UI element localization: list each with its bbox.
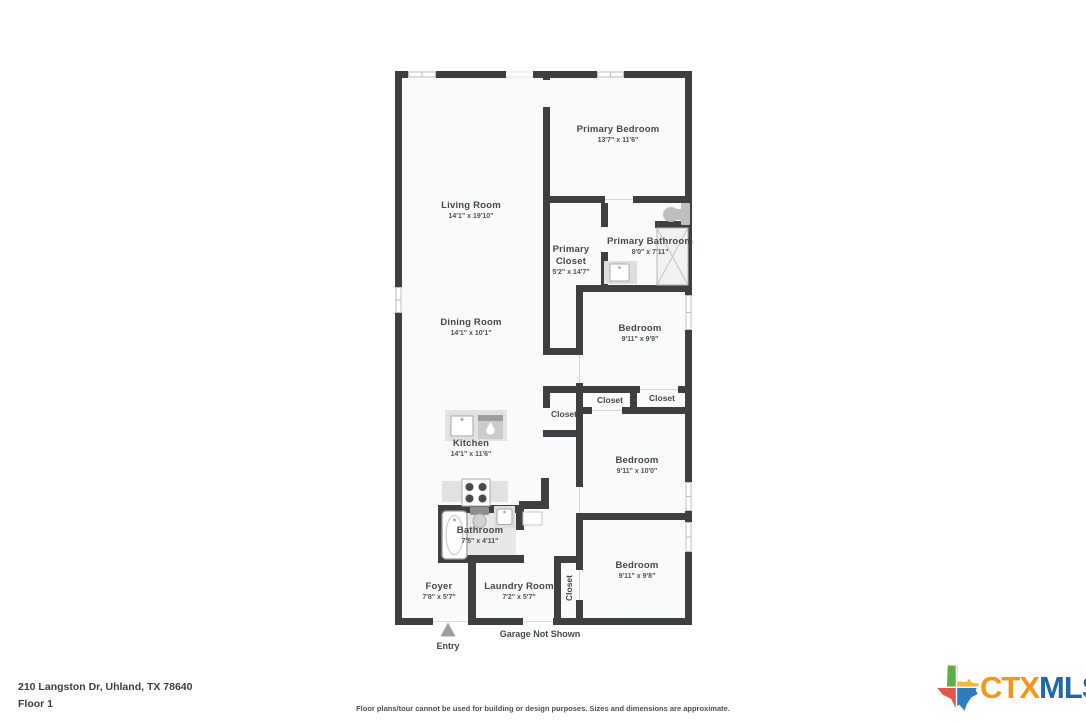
room-label-primary-bedroom: Primary Bedroom 13'7" x 11'6" (577, 124, 660, 146)
entry-label: Entry (436, 641, 459, 651)
closet-label-laundry: Closet (564, 575, 574, 601)
closet-label-hall: Closet (551, 409, 577, 419)
room-label-foyer: Foyer 7'8" x 5'7" (422, 581, 455, 603)
floorplan-drawing (0, 0, 1086, 724)
room-label-kitchen: Kitchen 14'1" x 11'6" (451, 438, 492, 460)
room-label-bedroom-2: Bedroom 9'11" x 10'0" (615, 455, 658, 477)
logo-ctx-text: CTX (980, 670, 1039, 705)
texas-state-icon (933, 664, 980, 712)
room-label-primary-closet: Primary Closet 5'2" x 14'7" (544, 244, 598, 278)
floor-number: Floor 1 (18, 698, 53, 710)
stove-icon (462, 479, 490, 506)
room-label-bedroom-1: Bedroom 9'11" x 9'9" (618, 323, 661, 345)
floorplan-page: Living Room 14'1" x 19'10" Primary Bedro… (0, 0, 1086, 724)
room-label-dining-room: Dining Room 14'1" x 10'1" (440, 317, 501, 339)
dishwasher-icon (478, 415, 503, 439)
disclaimer-text: Floor plans/tour cannot be used for buil… (356, 704, 730, 713)
room-label-bedroom-3: Bedroom 9'11" x 9'8" (615, 560, 658, 582)
room-label-laundry-room: Laundry Room 7'2" x 5'7" (484, 581, 553, 603)
closet-label-middle: Closet (597, 395, 623, 405)
ctxmls-logo: CTXMLS (933, 664, 1086, 712)
kitchen-sink-icon (451, 416, 473, 436)
sink-icon (604, 261, 637, 284)
logo-mls-text: MLS (1039, 670, 1086, 705)
property-address: 210 Langston Dr, Uhland, TX 78640 (18, 681, 192, 693)
room-label-living-room: Living Room 14'1" x 19'10" (441, 200, 501, 222)
room-label-primary-bathroom: Primary Bathroom 8'0" x 7'11" (607, 236, 693, 258)
room-label-bathroom: Bathroom 7'5" x 4'11" (457, 525, 503, 547)
garage-note: Garage Not Shown (500, 629, 581, 639)
ctxmls-wordmark: CTXMLS (980, 665, 1086, 711)
closet-label-right: Closet (649, 393, 675, 403)
